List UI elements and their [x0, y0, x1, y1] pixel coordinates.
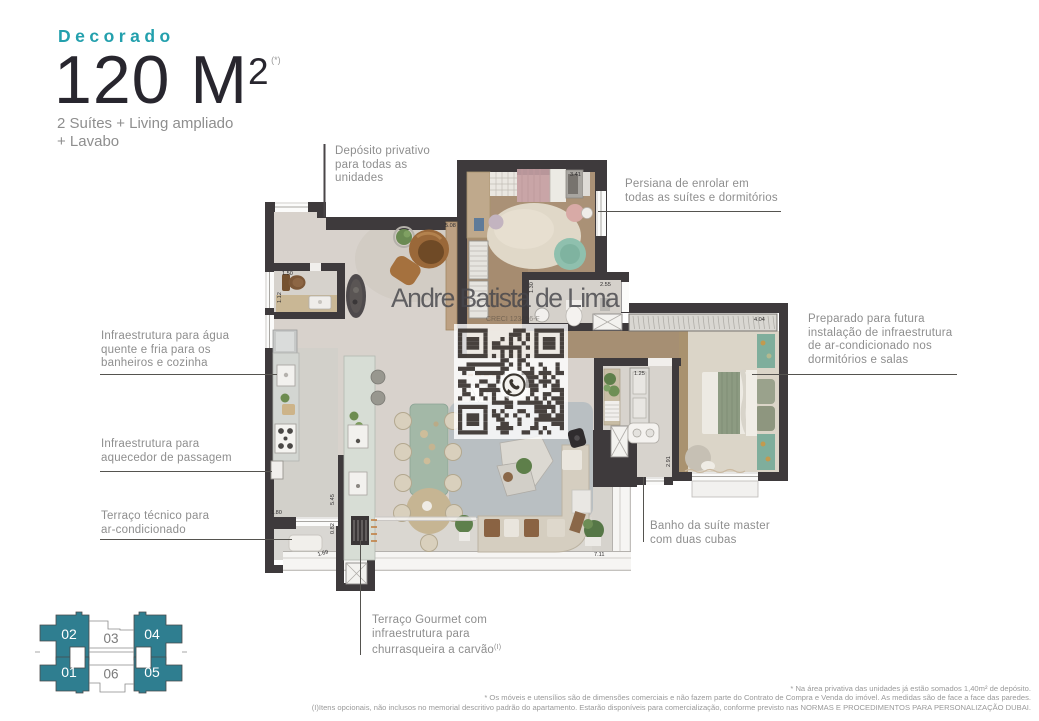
svg-text:1.80: 1.80 — [271, 510, 282, 516]
svg-text:03: 03 — [103, 631, 118, 646]
svg-text:01: 01 — [61, 664, 77, 680]
svg-text:5.08: 5.08 — [445, 223, 456, 229]
svg-text:06: 06 — [103, 667, 118, 682]
svg-text:1.50: 1.50 — [282, 271, 293, 277]
svg-text:5.45: 5.45 — [330, 494, 336, 505]
svg-text:04: 04 — [144, 626, 160, 642]
svg-text:05: 05 — [144, 664, 160, 680]
svg-text:4.04: 4.04 — [754, 317, 765, 323]
svg-text:1.25: 1.25 — [634, 371, 645, 377]
svg-text:3.41: 3.41 — [570, 172, 581, 178]
svg-text:0.82: 0.82 — [330, 523, 336, 534]
svg-text:02: 02 — [61, 626, 77, 642]
svg-text:1.12: 1.12 — [277, 292, 283, 303]
svg-text:2.91: 2.91 — [666, 456, 672, 467]
svg-text:7.11: 7.11 — [594, 552, 604, 558]
